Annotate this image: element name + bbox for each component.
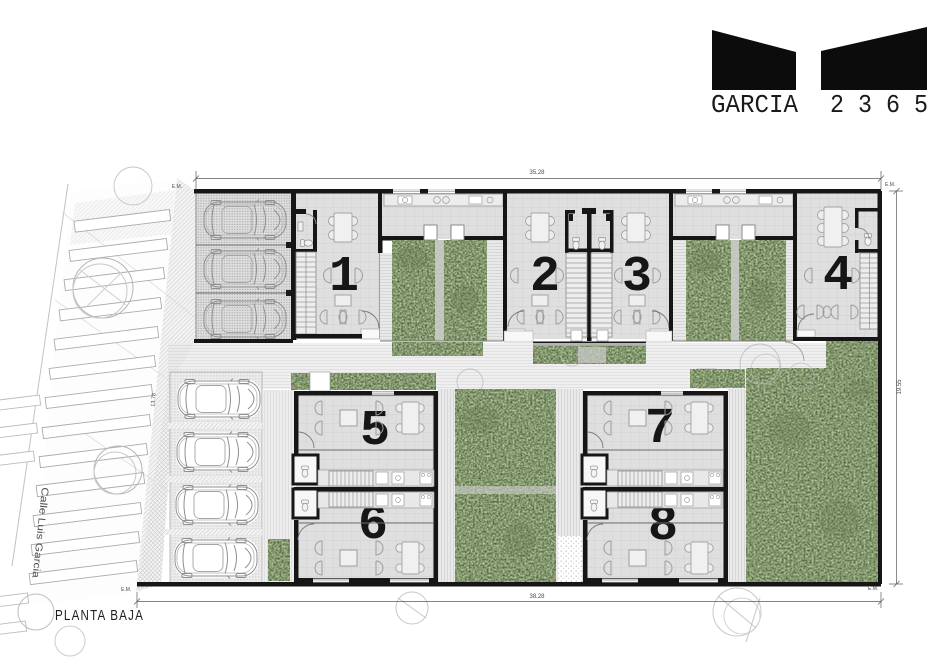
svg-text:E.M.: E.M.: [868, 586, 878, 592]
svg-text:38.28: 38.28: [529, 594, 545, 600]
svg-text:35.28: 35.28: [529, 170, 545, 176]
svg-text:7: 7: [645, 401, 675, 458]
svg-text:4: 4: [823, 248, 853, 305]
svg-text:PLANTA BAJA: PLANTA BAJA: [55, 608, 144, 624]
svg-text:E.M.: E.M.: [121, 587, 131, 593]
svg-text:E.M.: E.M.: [172, 184, 182, 190]
svg-text:E.M.: E.M.: [885, 182, 895, 188]
svg-text:2 3 6 5: 2 3 6 5: [830, 90, 928, 120]
svg-text:GARCIA: GARCIA: [711, 90, 798, 120]
svg-text:5: 5: [360, 403, 390, 460]
svg-text:19.55: 19.55: [897, 379, 903, 395]
